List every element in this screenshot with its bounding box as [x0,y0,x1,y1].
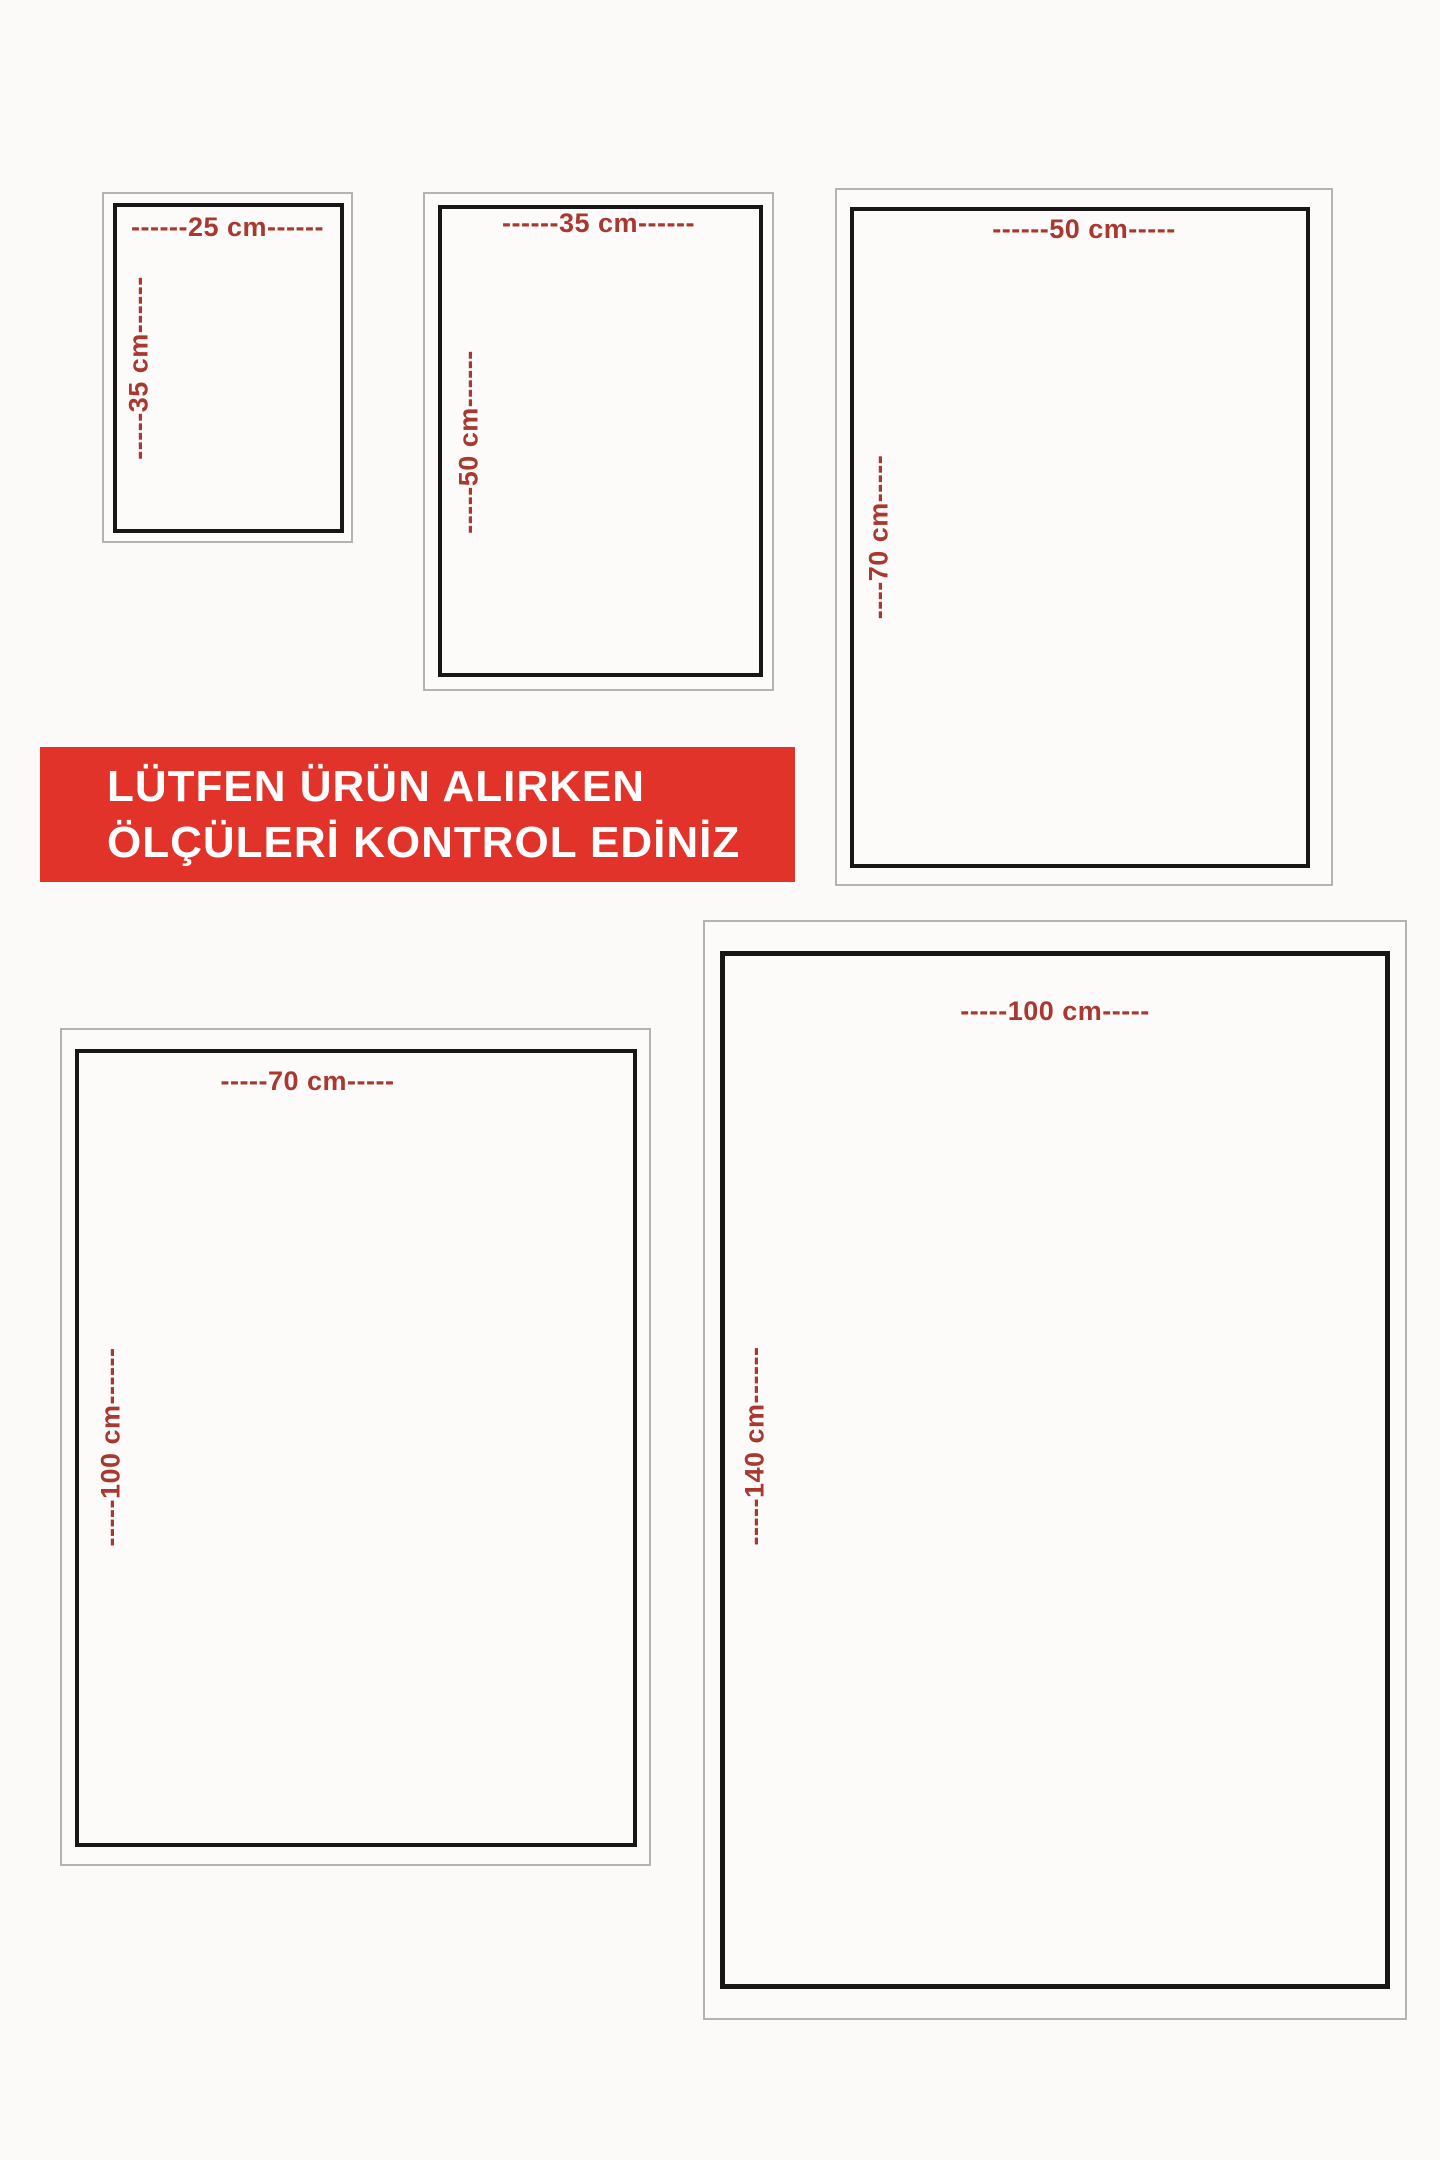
width-label: ------50 cm----- [992,214,1175,245]
size-box-35x50: ------35 cm------ -----50 cm------ [423,192,774,691]
height-label: -----35 cm------ [124,276,155,459]
height-label: ----70 cm----- [864,455,895,619]
warning-banner: LÜTFEN ÜRÜN ALIRKEN ÖLÇÜLERİ KONTROL EDİ… [40,747,795,882]
height-label: -----100 cm------ [96,1348,127,1547]
size-box-inner-border [438,205,763,677]
warning-line-1: LÜTFEN ÜRÜN ALIRKEN [107,759,785,815]
size-box-inner-border [75,1049,637,1847]
size-box-50x70: ------50 cm----- ----70 cm----- [835,188,1333,886]
size-box-inner-border [850,207,1310,868]
width-label: ------25 cm------ [131,212,324,243]
size-box-100x140: -----100 cm----- -----140 cm------ [703,920,1407,2020]
size-box-25x35: ------25 cm------ -----35 cm------ [102,192,353,543]
width-label: -----100 cm----- [960,996,1150,1027]
width-label: -----70 cm----- [221,1066,395,1097]
size-box-inner-border [720,951,1390,1989]
height-label: -----50 cm------ [454,350,485,533]
height-label: -----140 cm------ [740,1347,771,1546]
width-label: ------35 cm------ [502,208,695,239]
warning-line-2: ÖLÇÜLERİ KONTROL EDİNİZ [107,815,785,871]
size-box-70x100: -----70 cm----- -----100 cm------ [60,1028,651,1866]
